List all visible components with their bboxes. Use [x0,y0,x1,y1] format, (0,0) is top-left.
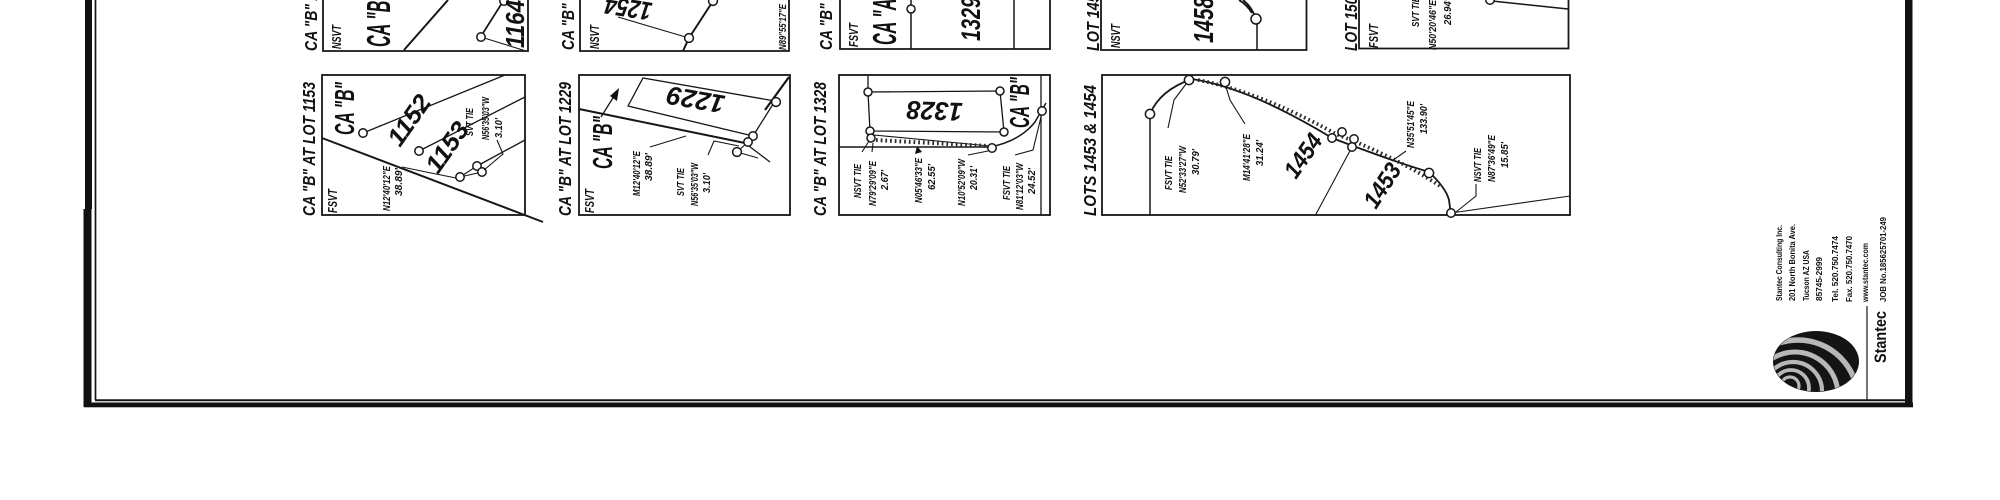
svg-text:CA "B" AT LOT 1229: CA "B" AT LOT 1229 [555,82,575,216]
svg-text:N05'46'33"E: N05'46'33"E [913,157,925,203]
svg-text:NSVT TIE: NSVT TIE [852,163,864,198]
svg-text:24.52': 24.52' [1026,168,1038,195]
svg-text:1152: 1152 [382,89,437,151]
svg-text:85745-2999: 85745-2999 [1814,257,1824,301]
svg-text:N35'51'45"E: N35'51'45"E [1405,100,1417,148]
svg-text:3.10': 3.10' [701,173,713,193]
svg-text:FSVT: FSVT [1366,23,1381,48]
svg-text:M12'40'12"E: M12'40'12"E [631,150,643,196]
svg-text:133.90': 133.90' [1418,104,1430,134]
svg-text:LOT 1501: LOT 1501 [1341,0,1361,51]
svg-text:CA "B": CA "B" [587,116,618,169]
svg-text:FSVT: FSVT [582,188,597,213]
svg-text:LOT 1457 & 1458: LOT 1457 & 1458 [1083,0,1103,51]
svg-text:1164: 1164 [500,0,530,48]
svg-text:CA "B" AT LOT 1328: CA "B" AT LOT 1328 [810,82,830,216]
svg-text:38.89': 38.89' [643,153,655,181]
svg-text:1328: 1328 [906,95,964,127]
svg-text:1329: 1329 [956,0,986,41]
svg-text:N89"55'17"E: N89"55'17"E [777,3,789,50]
svg-text:1229: 1229 [664,80,727,120]
svg-text:www.stantec.com: www.stantec.com [1860,243,1870,303]
svg-text:N12'40'12"E: N12'40'12"E [381,165,393,211]
svg-text:CA "B": CA "B" [360,0,397,47]
svg-text:N50'20'46"E: N50'20'46"E [1427,0,1439,50]
svg-text:SVT TIE: SVT TIE [675,167,687,196]
svg-text:CA "B" AT LOT 1254: CA "B" AT LOT 1254 [558,0,578,50]
svg-text:38.89': 38.89' [393,168,405,196]
svg-text:FSVT TIE: FSVT TIE [1001,165,1013,200]
svg-text:N52'33'27"W: N52'33'27"W [1177,145,1189,193]
svg-text:N87'36'49"E: N87'36'49"E [1486,134,1498,182]
svg-text:N81'12'03"W: N81'12'03"W [1014,162,1026,210]
svg-text:Stantec Consulting Inc.: Stantec Consulting Inc. [1774,225,1784,301]
svg-text:JOB No.185625701-249: JOB No.185625701-249 [1878,217,1888,302]
svg-text:N56'35'03"W: N56'35'03"W [480,96,492,140]
svg-text:FSVT TIE: FSVT TIE [1163,155,1175,190]
svg-text:CA "B" AT LOT 1153: CA "B" AT LOT 1153 [299,82,319,216]
svg-text:1254: 1254 [602,0,654,27]
svg-text:30.79': 30.79' [1190,149,1202,175]
svg-text:31.24': 31.24' [1254,140,1266,166]
svg-text:SVT TIE: SVT TIE [464,107,476,136]
svg-text:15.85': 15.85' [1499,142,1511,168]
svg-text:NSVT: NSVT [587,24,602,49]
svg-text:NSVT: NSVT [329,24,344,49]
svg-text:CA "B" AT LOT 1164: CA "B" AT LOT 1164 [301,0,321,51]
svg-text:N10'52'09"W: N10'52'09"W [956,158,968,206]
svg-text:Stantec: Stantec [1871,311,1890,363]
svg-text:Tel. 520.750.7474: Tel. 520.750.7474 [1830,236,1840,302]
svg-text:LOTS 1453 & 1454: LOTS 1453 & 1454 [1080,85,1100,216]
svg-text:1454: 1454 [1279,129,1329,184]
svg-text:Tucson AZ USA: Tucson AZ USA [1801,250,1811,301]
svg-text:NSVT TIE: NSVT TIE [1472,147,1484,182]
svg-text:N79'29'09"E: N79'29'09"E [867,160,879,206]
svg-text:62.55': 62.55' [926,164,938,190]
svg-text:CA "B": CA "B" [329,82,360,135]
svg-text:1458: 1458 [1188,0,1219,43]
svg-text:NSVT: NSVT [1108,23,1123,48]
svg-text:3.10': 3.10' [493,118,505,138]
svg-text:M14'41'28"E: M14'41'28"E [1241,133,1253,181]
svg-text:CA "B": CA "B" [1004,77,1035,128]
svg-text:SVT TIE: SVT TIE [1410,0,1422,27]
svg-text:26.94': 26.94' [1442,0,1454,26]
svg-text:CA "A": CA "A" [866,0,903,45]
svg-text:2.67': 2.67' [879,170,891,191]
svg-text:N56'35'03"W: N56'35'03"W [689,162,701,206]
svg-text:Fax. 520.750.7470: Fax. 520.750.7470 [1844,236,1854,302]
svg-text:201 North Bonita Ave.: 201 North Bonita Ave. [1787,224,1797,301]
svg-text:CA "B" AT LOT 1329: CA "B" AT LOT 1329 [816,0,836,50]
svg-text:20.31': 20.31' [968,166,980,191]
svg-text:FSVT: FSVT [846,22,861,47]
svg-text:1453: 1453 [1358,158,1407,213]
svg-text:FSVT: FSVT [325,188,340,213]
